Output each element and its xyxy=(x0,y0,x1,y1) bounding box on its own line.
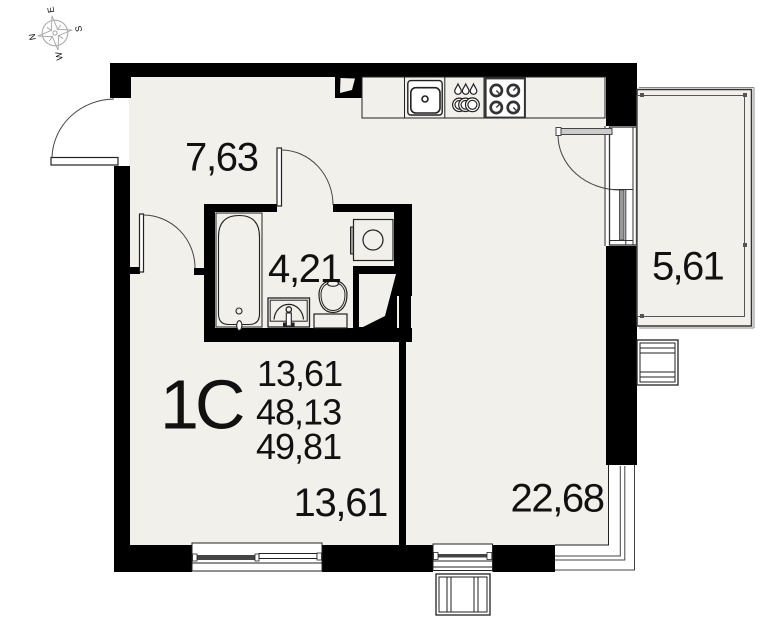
svg-text:4,21: 4,21 xyxy=(268,247,341,291)
svg-text:22,68: 22,68 xyxy=(511,477,604,521)
svg-text:13,61: 13,61 xyxy=(294,481,388,525)
svg-text:7,63: 7,63 xyxy=(185,136,258,180)
svg-text:13,61: 13,61 xyxy=(257,353,342,394)
svg-text:49,81: 49,81 xyxy=(256,426,341,467)
svg-text:5,61: 5,61 xyxy=(652,245,724,289)
svg-text:1C: 1C xyxy=(160,366,243,444)
